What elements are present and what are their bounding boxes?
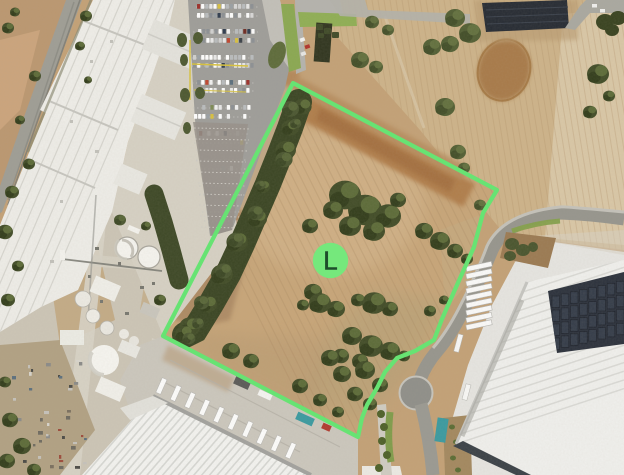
svg-text:L: L xyxy=(323,246,337,276)
